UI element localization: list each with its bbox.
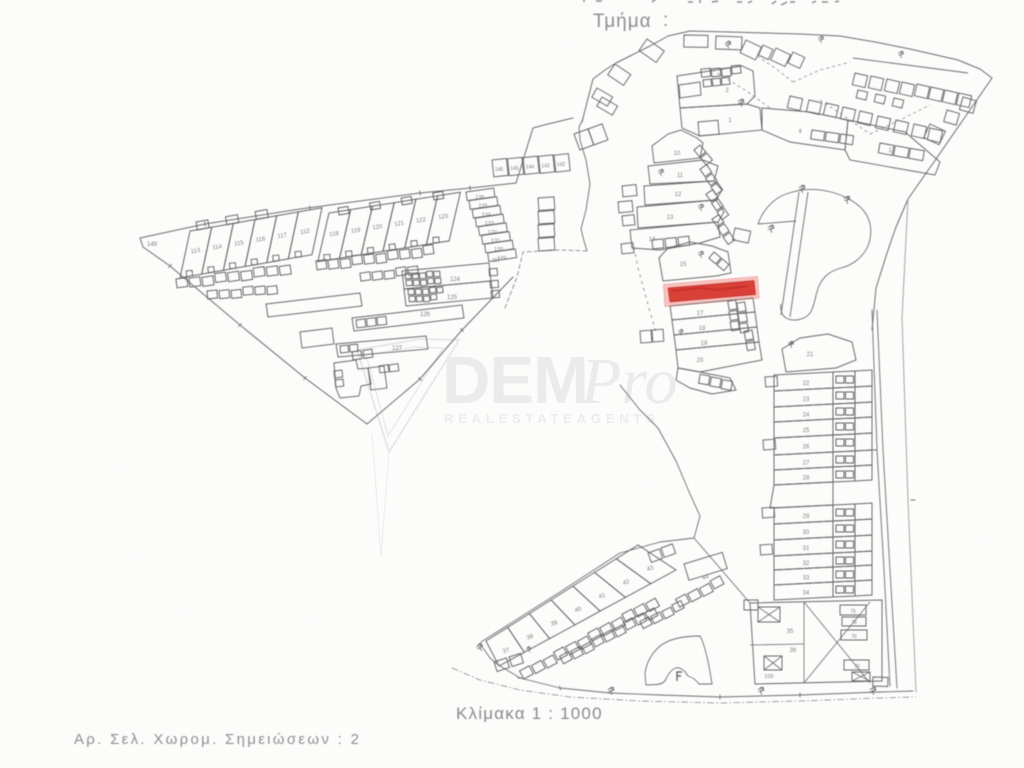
svg-text:15: 15 xyxy=(680,262,687,268)
svg-text:13: 13 xyxy=(667,215,674,221)
svg-text:DEM: DEM xyxy=(442,343,588,418)
svg-text:11: 11 xyxy=(677,173,684,179)
svg-text:135: 135 xyxy=(479,204,488,210)
svg-text:132: 132 xyxy=(488,230,497,236)
svg-text:22: 22 xyxy=(803,381,810,387)
svg-text:143: 143 xyxy=(541,163,550,169)
svg-text:25: 25 xyxy=(803,428,810,434)
svg-text:20: 20 xyxy=(697,358,704,364)
svg-text:Κλίμακα 1 : 1000: Κλίμακα 1 : 1000 xyxy=(456,704,603,723)
svg-text:23: 23 xyxy=(803,397,810,403)
svg-text:149: 149 xyxy=(147,242,158,248)
svg-text:33: 33 xyxy=(803,576,810,582)
svg-text:26: 26 xyxy=(803,445,810,451)
svg-text:105: 105 xyxy=(764,674,773,680)
svg-text:32: 32 xyxy=(803,561,810,567)
svg-text:35: 35 xyxy=(787,629,794,635)
svg-text:144: 144 xyxy=(526,165,535,171)
svg-text:21: 21 xyxy=(807,352,814,358)
svg-text:36: 36 xyxy=(790,648,797,654)
svg-text:75: 75 xyxy=(850,609,856,615)
svg-text:29: 29 xyxy=(803,514,810,520)
svg-text:136: 136 xyxy=(475,195,484,201)
svg-text:133: 133 xyxy=(485,221,494,227)
svg-text:31: 31 xyxy=(803,546,810,552)
svg-text:131: 131 xyxy=(491,239,500,245)
svg-text:24: 24 xyxy=(803,413,810,419)
svg-text:Τμήμα: Τμήμα xyxy=(593,11,652,32)
svg-text:75: 75 xyxy=(854,664,860,670)
svg-text:146: 146 xyxy=(495,167,504,173)
svg-text:27: 27 xyxy=(803,461,810,467)
svg-text:134: 134 xyxy=(482,212,491,218)
svg-text:125: 125 xyxy=(447,295,458,301)
svg-text:142: 142 xyxy=(557,162,566,168)
svg-text:18: 18 xyxy=(699,326,706,332)
svg-text:76: 76 xyxy=(851,634,857,640)
svg-text:Pro: Pro xyxy=(580,345,678,418)
svg-text:127: 127 xyxy=(392,346,403,352)
svg-text:12: 12 xyxy=(675,192,682,198)
svg-text:78: 78 xyxy=(851,620,857,626)
svg-text:Αρ. Σελ. Χωρομ. Σημειώσεων: Αρ. Σελ. Χωρομ. Σημειώσεων : 2 xyxy=(74,731,361,748)
svg-text:10: 10 xyxy=(674,151,681,157)
svg-text:REALESTATEAGENTS: REALESTATEAGENTS xyxy=(444,411,660,426)
svg-text:130: 130 xyxy=(494,247,503,253)
svg-text:17: 17 xyxy=(697,311,704,317)
svg-text:19: 19 xyxy=(701,341,708,347)
svg-text:30: 30 xyxy=(803,530,810,536)
svg-text:157: 157 xyxy=(492,258,501,264)
svg-text:145: 145 xyxy=(510,166,519,172)
svg-text:34: 34 xyxy=(803,591,810,597)
svg-text::: : xyxy=(663,10,668,31)
svg-text:126: 126 xyxy=(420,312,431,318)
svg-text:28: 28 xyxy=(803,476,810,482)
svg-text:124: 124 xyxy=(450,277,461,283)
